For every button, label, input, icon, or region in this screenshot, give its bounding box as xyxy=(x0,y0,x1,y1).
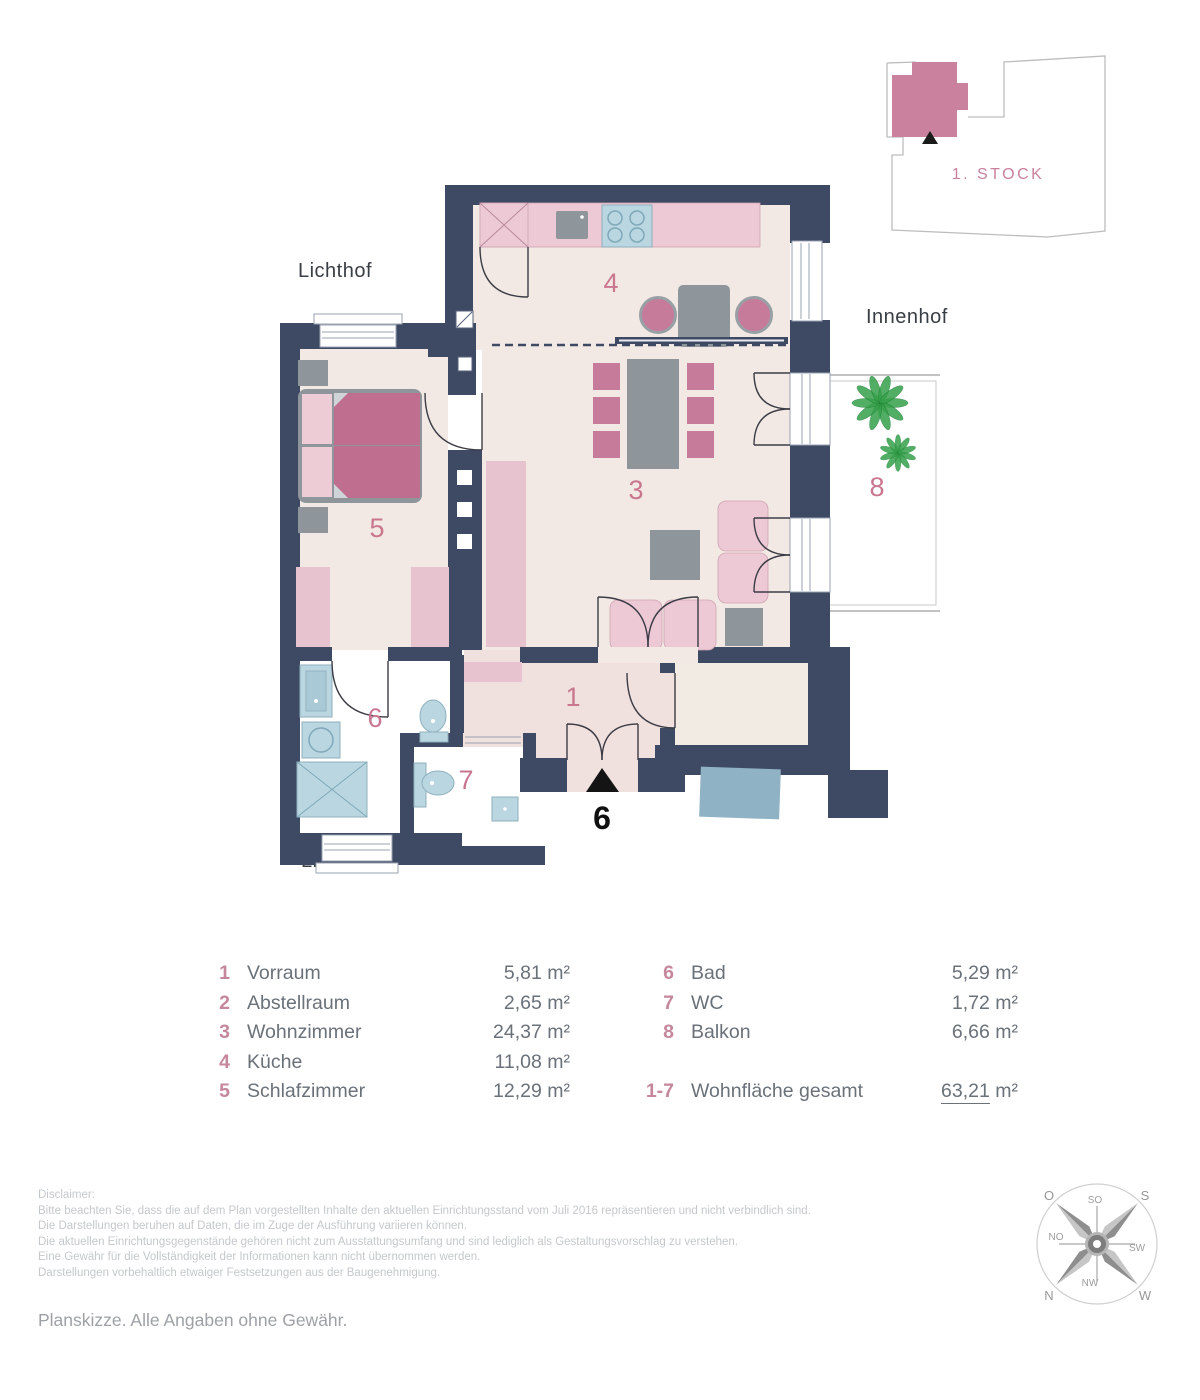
floor-label: 1. STOCK xyxy=(952,166,1045,183)
legend-room-area: 6,66 m² xyxy=(952,1021,1018,1044)
floorplan-page: Lichthof Innenhof Lichthof 1. STOCK xyxy=(0,0,1200,1400)
shaft-symbol xyxy=(458,357,472,371)
kitchen-sink xyxy=(556,211,588,239)
bedroom-window xyxy=(320,325,396,347)
legend-room-area: 12,29 m² xyxy=(493,1080,570,1103)
legend-room-number: 7 xyxy=(642,992,674,1015)
hall-wardrobe xyxy=(464,662,522,682)
legend-room-number: 5 xyxy=(198,1080,230,1103)
legend-room-area: 24,37 m² xyxy=(493,1021,570,1044)
legend-room-area: 5,29 m² xyxy=(952,962,1018,985)
legend-room-name: WC xyxy=(691,992,952,1015)
kitchen-chair xyxy=(641,298,676,333)
pillow xyxy=(302,447,332,497)
legend-total-value: 63,21 xyxy=(941,1080,990,1104)
legend-room-number: 6 xyxy=(642,962,674,985)
legend-row: 4 Küche 11,08 m² xyxy=(198,1051,570,1081)
compass-label-n: N xyxy=(1044,1288,1053,1303)
wardrobe xyxy=(411,567,449,647)
legend-left-column: 1 Vorraum 5,81 m² 2 Abstellraum 2,65 m² … xyxy=(198,962,570,1110)
legend-row: 6 Bad 5,29 m² xyxy=(642,962,1018,992)
shaft-niche xyxy=(457,534,472,549)
room-number-wohnzimmer: 3 xyxy=(628,475,643,505)
room-number-wc: 7 xyxy=(458,765,473,795)
legend-row: 8 Balkon 6,66 m² xyxy=(642,1021,1018,1051)
shaft-niche xyxy=(457,470,472,485)
floorplan: 6 1 3 4 5 6 7 8 xyxy=(280,185,940,875)
disclaimer-line: Darstellungen vorbehaltlich etwaiger Fes… xyxy=(38,1266,938,1282)
stove xyxy=(602,205,652,247)
legend-room-name: Balkon xyxy=(691,1021,952,1044)
legend-row: 7 WC 1,72 m² xyxy=(642,992,1018,1022)
compass-label-no: NO xyxy=(1049,1232,1064,1243)
room-number-bad: 6 xyxy=(367,703,382,733)
compass-label-w: W xyxy=(1139,1288,1152,1303)
legend-room-name: Wohnzimmer xyxy=(247,1021,493,1044)
compass-rose-icon: O S W N SO SW NW NO xyxy=(1025,1172,1170,1317)
legend-room-area: 5,81 m² xyxy=(504,962,570,985)
legend-room-number: 1 xyxy=(198,962,230,985)
disclaimer-heading: Disclaimer: xyxy=(38,1188,938,1204)
shaft-niche xyxy=(457,502,472,517)
legend-total-row: 1-7 Wohnfläche gesamt 63,21 m² xyxy=(642,1080,1018,1110)
kitchen-window xyxy=(792,241,822,321)
legend-total-unit: m² xyxy=(990,1080,1018,1102)
compass-label-o: O xyxy=(1044,1188,1054,1203)
legend-total-number: 1-7 xyxy=(642,1080,674,1103)
legend-row: 1 Vorraum 5,81 m² xyxy=(198,962,570,992)
legend-room-number: 8 xyxy=(642,1021,674,1044)
compass-label-nw: NW xyxy=(1082,1278,1099,1289)
room-number-kueche: 4 xyxy=(603,268,618,298)
room-number-schlafzimmer: 5 xyxy=(369,513,384,543)
kitchen-chair xyxy=(737,298,772,333)
legend-room-name: Abstellraum xyxy=(247,992,504,1015)
nightstand xyxy=(298,507,328,533)
bath-sink xyxy=(420,700,446,732)
disclaimer-line: Eine Gewähr für die Vollständigkeit der … xyxy=(38,1250,938,1266)
legend-total-name: Wohnfläche gesamt xyxy=(691,1080,941,1103)
dining-table xyxy=(627,359,679,469)
side-table xyxy=(725,608,763,646)
pillow xyxy=(302,394,332,444)
legend-row: 2 Abstellraum 2,65 m² xyxy=(198,992,570,1022)
legend-room-area: 1,72 m² xyxy=(952,992,1018,1015)
storage-floor xyxy=(675,660,808,748)
legend-room-name: Vorraum xyxy=(247,962,504,985)
compass-label-sw: SW xyxy=(1129,1243,1146,1254)
footer-note: Planskizze. Alle Angaben ohne Gewähr. xyxy=(38,1310,347,1331)
legend-row: 3 Wohnzimmer 24,37 m² xyxy=(198,1021,570,1051)
bath-window xyxy=(322,835,392,861)
legend-row: 5 Schlafzimmer 12,29 m² xyxy=(198,1080,570,1110)
sideboard xyxy=(486,461,526,647)
compass-label-so: SO xyxy=(1088,1195,1103,1206)
room-number-balkon: 8 xyxy=(869,472,884,502)
compass-label-s: S xyxy=(1141,1188,1150,1203)
legend-room-area: 2,65 m² xyxy=(504,992,570,1015)
legend-room-name: Schlafzimmer xyxy=(247,1080,493,1103)
disclaimer-line: Die Darstellungen beruhen auf Daten, die… xyxy=(38,1219,938,1235)
wardrobe xyxy=(296,567,330,647)
nightstand xyxy=(298,360,328,386)
duvet xyxy=(334,393,420,445)
coffee-table xyxy=(650,530,700,580)
legend-room-name: Küche xyxy=(247,1051,494,1074)
disclaimer-line: Die aktuellen Einrichtungsgegenstände ge… xyxy=(38,1235,938,1251)
bedroom-window-sill xyxy=(314,314,402,324)
wc-basin xyxy=(422,771,454,795)
duvet xyxy=(334,446,420,498)
disclaimer: Disclaimer: Bitte beachten Sie, dass die… xyxy=(38,1188,938,1282)
bath-sink-base xyxy=(420,732,448,742)
bath-window-sill xyxy=(316,863,398,873)
legend-room-number: 3 xyxy=(198,1021,230,1044)
entrance-door-number: 6 xyxy=(593,800,611,836)
doormat xyxy=(699,767,781,820)
room-number-vorraum: 1 xyxy=(565,682,580,712)
legend-room-number: 4 xyxy=(198,1051,230,1074)
legend-room-name: Bad xyxy=(691,962,952,985)
legend-room-area: 11,08 m² xyxy=(494,1051,570,1074)
disclaimer-line: Bitte beachten Sie, dass die auf dem Pla… xyxy=(38,1204,938,1220)
legend-total-area: 63,21 m² xyxy=(941,1080,1018,1103)
legend-room-number: 2 xyxy=(198,992,230,1015)
legend-right-column: 6 Bad 5,29 m² 7 WC 1,72 m² 8 Balkon 6,66… xyxy=(642,962,1018,1109)
